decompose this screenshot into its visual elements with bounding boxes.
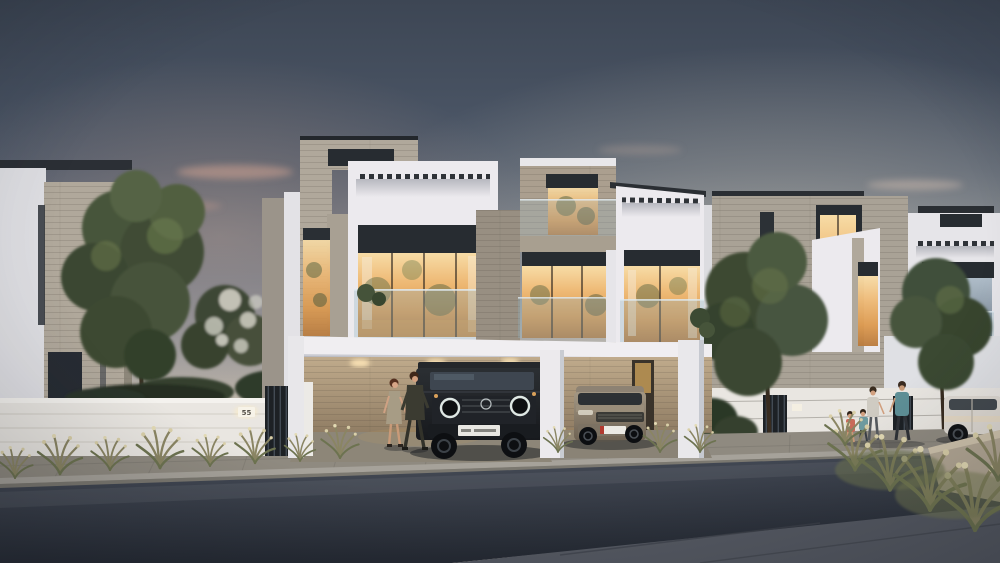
architectural-render: 55	[0, 0, 1000, 563]
render-canvas: 55	[0, 0, 1000, 563]
vignette	[0, 0, 1000, 563]
